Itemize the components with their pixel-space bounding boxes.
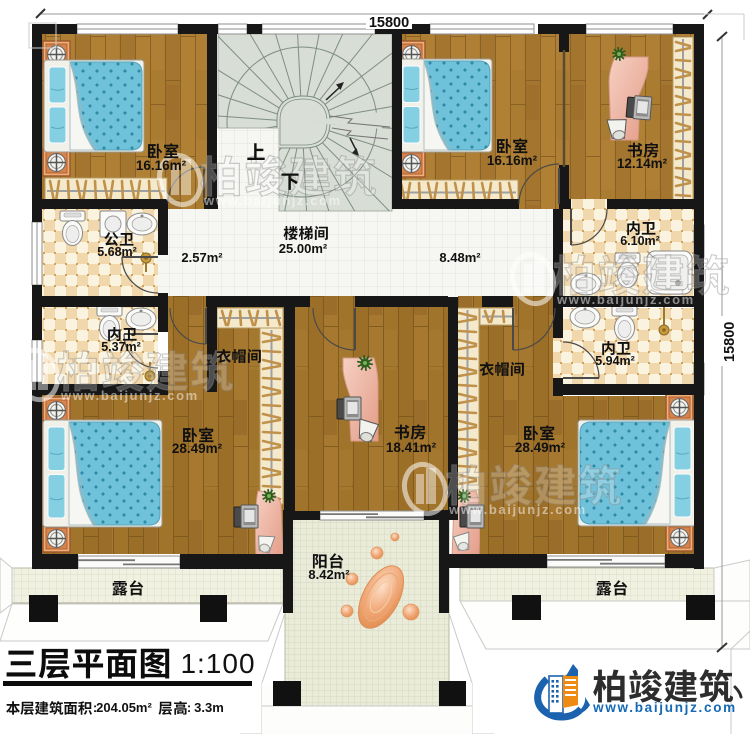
svg-text:www.baijunjz.com: www.baijunjz.com — [60, 388, 199, 403]
svg-text::: : — [187, 700, 191, 715]
svg-text:16.16m²: 16.16m² — [136, 158, 187, 173]
svg-text:www.baijunjz.com: www.baijunjz.com — [556, 292, 695, 307]
svg-text:5.68m²: 5.68m² — [97, 245, 137, 259]
svg-text:204.05m²: 204.05m² — [96, 700, 152, 715]
svg-text:28.49m²: 28.49m² — [515, 440, 566, 455]
svg-text:3.3m: 3.3m — [194, 700, 224, 715]
svg-text:www.baijunjz.com: www.baijunjz.com — [448, 502, 587, 517]
svg-text:8.48m²: 8.48m² — [439, 250, 481, 265]
svg-text:15800: 15800 — [722, 322, 738, 362]
svg-text:www.baijunjz.com: www.baijunjz.com — [203, 193, 342, 208]
svg-text:2.57m²: 2.57m² — [181, 250, 223, 265]
svg-text:18.41m²: 18.41m² — [386, 440, 437, 455]
svg-text:28.49m²: 28.49m² — [172, 441, 223, 456]
svg-text:5.37m²: 5.37m² — [101, 340, 141, 354]
svg-text:5.94m²: 5.94m² — [595, 354, 635, 368]
svg-text:15800: 15800 — [369, 15, 409, 31]
svg-text:12.14m²: 12.14m² — [617, 156, 668, 171]
svg-text:25.00m²: 25.00m² — [279, 241, 328, 256]
svg-text:6.10m²: 6.10m² — [620, 234, 660, 248]
svg-text:1:100: 1:100 — [180, 648, 255, 679]
svg-text:www.baijunjz.com: www.baijunjz.com — [592, 700, 737, 715]
svg-text:16.16m²: 16.16m² — [487, 153, 538, 168]
svg-text:8.42m²: 8.42m² — [308, 567, 350, 582]
